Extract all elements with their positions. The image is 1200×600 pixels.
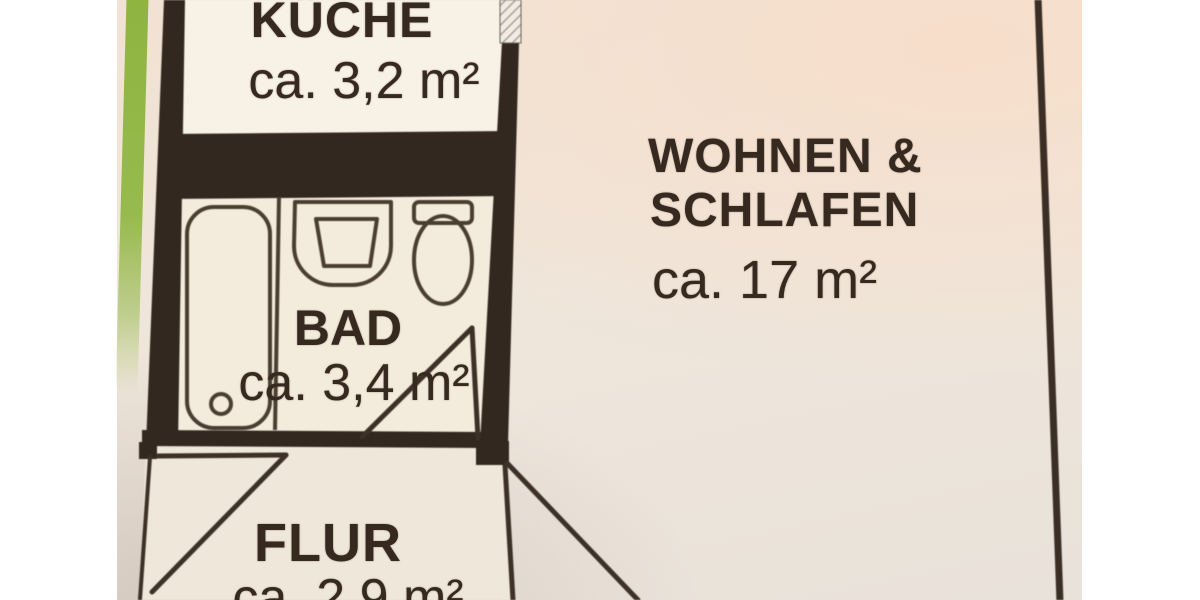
bathroom-label: BAD	[294, 303, 402, 353]
living-room-label-line1: WOHNEN &	[648, 133, 923, 181]
wall-outer-right-line	[1038, 0, 1060, 600]
hatched-wall-segment	[500, 0, 521, 43]
kitchen-area-label: ca. 3,2 m²	[248, 55, 479, 107]
hallway-label: FLUR	[254, 516, 402, 570]
living-room-label-line2: SCHLAFEN	[650, 187, 919, 235]
wall-kitchen-bathroom	[164, 131, 516, 199]
hallway-area-label: ca. 2,9 m²	[232, 572, 463, 600]
floor-plan-photo-page: KÜCHE ca. 3,2 m² WOHNEN & SCHLAFEN ca. 1…	[0, 0, 1200, 600]
living-room-area-label: ca. 17 m²	[652, 253, 877, 307]
living-room-door-swing	[505, 463, 638, 600]
kitchen-label: KÜCHE	[251, 0, 434, 45]
wall-left-end-cap	[139, 442, 157, 459]
floor-plan-drawing	[0, 0, 1200, 600]
wall-bathroom-bottom	[142, 430, 482, 448]
bathroom-area-label: ca. 3,4 m²	[238, 357, 469, 409]
